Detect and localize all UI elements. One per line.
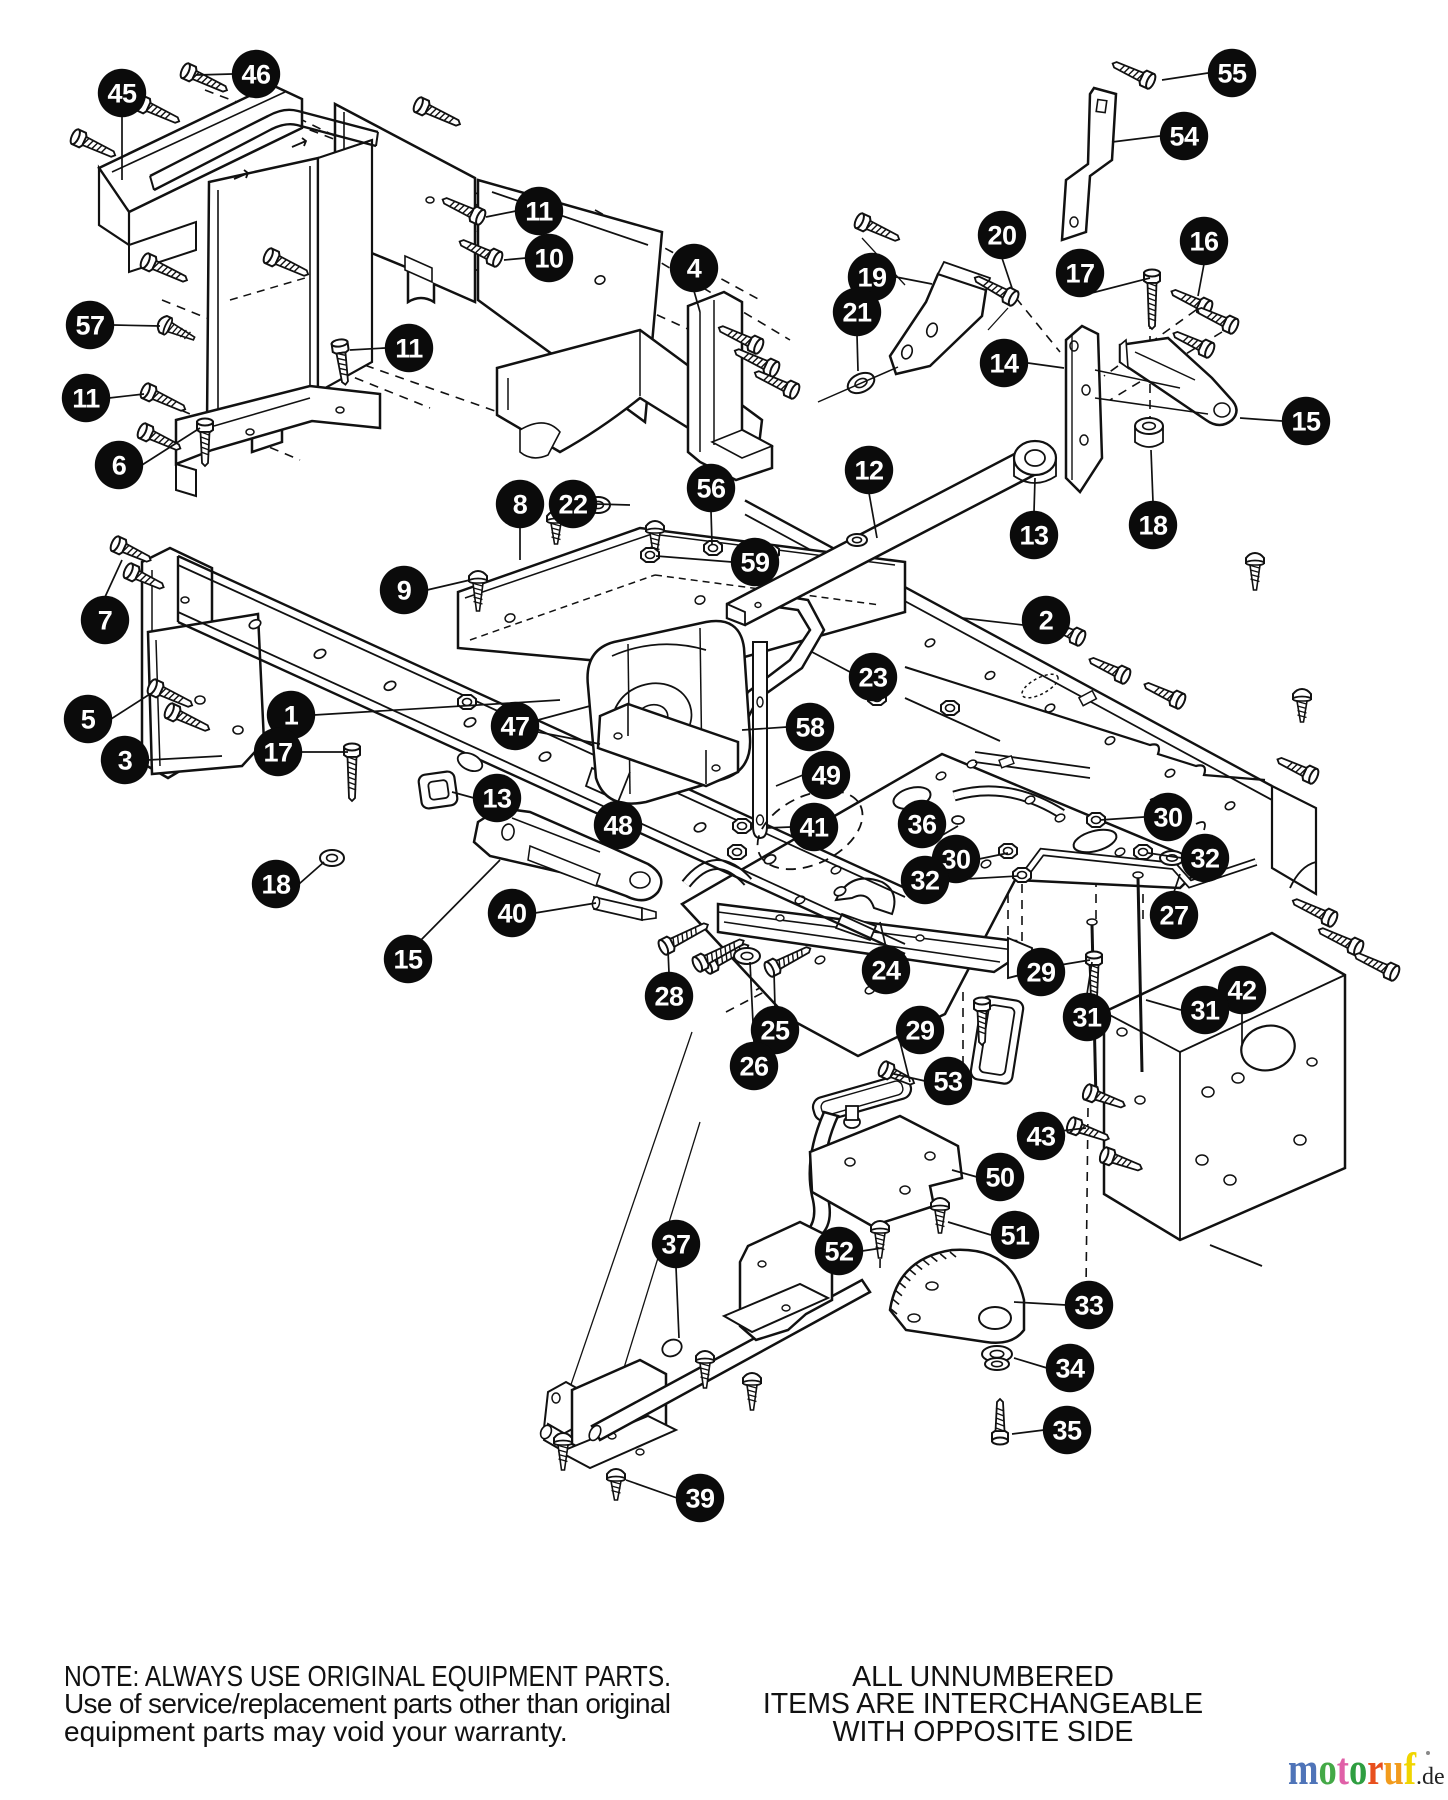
svg-text:25: 25: [760, 1016, 790, 1046]
svg-text:3: 3: [118, 746, 133, 776]
svg-text:18: 18: [261, 870, 291, 900]
svg-text:17: 17: [263, 738, 292, 768]
svg-text:29: 29: [905, 1016, 935, 1046]
svg-text:2: 2: [1039, 606, 1054, 636]
svg-text:55: 55: [1217, 59, 1247, 89]
svg-text:56: 56: [696, 474, 726, 504]
svg-text:1: 1: [284, 701, 299, 731]
svg-text:39: 39: [685, 1484, 715, 1514]
svg-text:57: 57: [75, 311, 104, 341]
svg-text:4: 4: [687, 254, 702, 284]
svg-text:58: 58: [795, 713, 825, 743]
svg-text:5: 5: [81, 705, 96, 735]
svg-text:8: 8: [513, 490, 528, 520]
svg-text:32: 32: [1190, 844, 1219, 874]
svg-text:22: 22: [558, 490, 587, 520]
svg-text:WITH OPPOSITE SIDE: WITH OPPOSITE SIDE: [833, 1716, 1134, 1748]
svg-text:16: 16: [1189, 227, 1219, 257]
svg-text:59: 59: [740, 548, 770, 578]
svg-text:40: 40: [497, 899, 526, 929]
svg-text:11: 11: [395, 334, 423, 364]
svg-text:equipment parts may void your: equipment parts may void your warranty.: [64, 1716, 568, 1747]
svg-text:28: 28: [654, 982, 684, 1012]
svg-text:27: 27: [1159, 901, 1188, 931]
svg-text:45: 45: [107, 79, 137, 109]
svg-text:15: 15: [393, 945, 423, 975]
svg-text:51: 51: [1000, 1221, 1030, 1251]
svg-text:48: 48: [603, 811, 633, 841]
svg-text:52: 52: [824, 1237, 853, 1267]
svg-text:35: 35: [1052, 1416, 1082, 1446]
svg-text:31: 31: [1190, 996, 1220, 1026]
svg-text:18: 18: [1138, 511, 1168, 541]
svg-text:6: 6: [112, 451, 127, 481]
svg-text:13: 13: [1019, 521, 1049, 551]
svg-text:23: 23: [858, 663, 888, 693]
svg-text:36: 36: [907, 810, 937, 840]
svg-text:30: 30: [1153, 803, 1182, 833]
svg-text:31: 31: [1072, 1003, 1102, 1033]
svg-text:15: 15: [1291, 407, 1321, 437]
svg-text:26: 26: [739, 1052, 769, 1082]
svg-text:43: 43: [1026, 1122, 1056, 1152]
svg-text:13: 13: [482, 784, 512, 814]
svg-text:32: 32: [910, 866, 939, 896]
svg-text:41: 41: [799, 813, 829, 843]
svg-text:17: 17: [1065, 259, 1094, 289]
svg-text:24: 24: [871, 956, 901, 986]
svg-text:37: 37: [661, 1230, 690, 1260]
svg-text:53: 53: [933, 1067, 963, 1097]
svg-text:12: 12: [854, 456, 883, 486]
svg-text:42: 42: [1227, 976, 1256, 1006]
svg-text:9: 9: [397, 576, 412, 606]
svg-text:14: 14: [989, 349, 1019, 379]
svg-text:54: 54: [1169, 122, 1199, 152]
svg-text:49: 49: [811, 761, 841, 791]
svg-text:46: 46: [241, 60, 271, 90]
svg-text:29: 29: [1026, 958, 1056, 988]
svg-text:47: 47: [500, 712, 529, 742]
svg-text:10: 10: [534, 244, 563, 274]
svg-text:33: 33: [1074, 1291, 1104, 1321]
svg-text:50: 50: [985, 1163, 1014, 1193]
svg-text:20: 20: [987, 221, 1016, 251]
svg-text:21: 21: [842, 298, 872, 328]
svg-text:7: 7: [98, 606, 113, 636]
svg-text:19: 19: [857, 263, 887, 293]
svg-text:Use of service/replacement par: Use of service/replacement parts other t…: [64, 1688, 671, 1719]
svg-text:11: 11: [525, 197, 553, 227]
svg-text:11: 11: [72, 384, 100, 414]
svg-text:34: 34: [1055, 1354, 1085, 1384]
